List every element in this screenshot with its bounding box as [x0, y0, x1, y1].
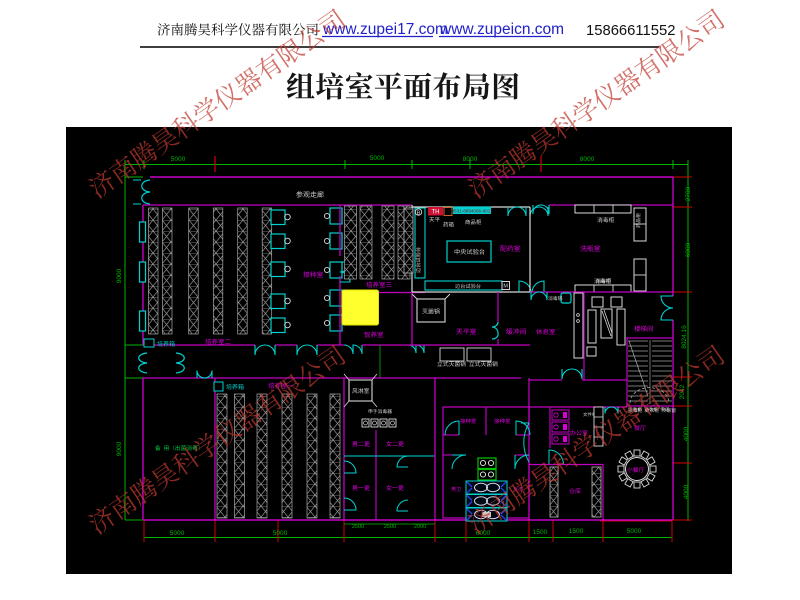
svg-text:2500: 2500 [384, 524, 396, 530]
svg-text:2042: 2042 [679, 384, 686, 399]
svg-text:5000: 5000 [171, 156, 186, 163]
svg-text:4000: 4000 [683, 426, 690, 441]
svg-text:9000: 9000 [116, 441, 123, 456]
svg-text:15866611552: 15866611552 [586, 23, 675, 39]
svg-text:www.zupeicn.com: www.zupeicn.com [439, 21, 564, 38]
svg-text:1500: 1500 [569, 528, 584, 535]
svg-text:5000: 5000 [273, 530, 288, 537]
svg-text:B: B [417, 210, 421, 216]
svg-text:9000: 9000 [116, 268, 123, 283]
svg-text:5000: 5000 [627, 528, 642, 535]
svg-text:2500: 2500 [352, 524, 364, 530]
svg-text:1500: 1500 [533, 529, 548, 536]
svg-text:www.zupei17.com: www.zupei17.com [322, 21, 448, 38]
svg-text:8000: 8000 [463, 156, 478, 163]
svg-text:6000: 6000 [685, 242, 692, 257]
svg-text:8000: 8000 [580, 156, 595, 163]
svg-text:M: M [503, 284, 508, 290]
svg-text:5000: 5000 [170, 530, 185, 537]
svg-text:4000: 4000 [683, 484, 690, 499]
svg-text:5000: 5000 [370, 155, 385, 162]
svg-text:TH: TH [432, 210, 440, 216]
svg-text:2700: 2700 [685, 186, 692, 201]
svg-text:2000: 2000 [414, 524, 426, 530]
svg-text:8024.16: 8024.16 [681, 325, 688, 349]
svg-text:0531-8894066-8011: 0531-8894066-8011 [451, 208, 492, 213]
